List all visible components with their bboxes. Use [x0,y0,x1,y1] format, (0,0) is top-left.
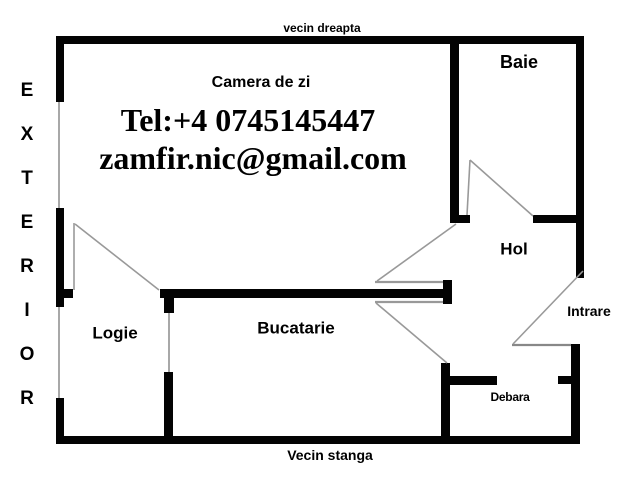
exterior-letter: E [14,69,40,113]
wall-bath-left [450,36,459,223]
wall-right-lower [571,344,580,444]
door-swing-bath [470,160,533,216]
label-room-hall: Hol [500,241,527,258]
exterior-letter: R [14,377,40,421]
label-entrance: Intrare [567,304,611,318]
label-room-bath: Baie [500,53,538,71]
floor-plan: vecin dreapta Vecin stanga Intrare E X T… [0,0,640,480]
wall-pantry-top-left [450,376,497,385]
wall-left-upper [56,36,64,102]
exterior-letter: I [14,289,40,333]
label-exterior: E X T E R I O R [14,69,40,421]
door-swing-living-hall [377,224,456,281]
door-swing-loggia [75,224,159,290]
wall-bath-bottom-left-tick [450,215,470,223]
contact-email: zamfir.nic@gmail.com [99,142,407,174]
wall-kitchen-top-right-end [443,280,452,304]
label-neighbor-bottom: Vecin stanga [287,448,373,462]
contact-phone: Tel:+4 0745145447 [121,104,375,136]
exterior-letter: R [14,245,40,289]
wall-loggia-partition-upper [164,289,174,313]
label-room-pantry: Debara [491,391,530,403]
label-room-kitchen: Bucatarie [257,320,334,337]
floor-plan-drawing [0,0,640,480]
wall-loggia-top-tick [56,289,73,298]
wall-right-upper [576,36,584,278]
door-swing-kitchen-hall [376,303,447,363]
label-room-living: Camera de zi [212,75,311,91]
label-neighbor-top: vecin dreapta [283,22,360,34]
wall-bottom [56,436,580,444]
wall-pantry-top-right [558,376,571,384]
door-leaf-bath [467,160,470,215]
label-room-loggia: Logie [92,325,137,342]
exterior-letter: O [14,333,40,377]
wall-pantry-left [441,363,450,444]
wall-kitchen-top [160,289,452,298]
exterior-letter: E [14,201,40,245]
wall-top [56,36,584,44]
wall-bath-bottom-right [533,215,584,223]
wall-loggia-partition-lower [164,372,173,444]
exterior-letter: X [14,113,40,157]
exterior-letter: T [14,157,40,201]
